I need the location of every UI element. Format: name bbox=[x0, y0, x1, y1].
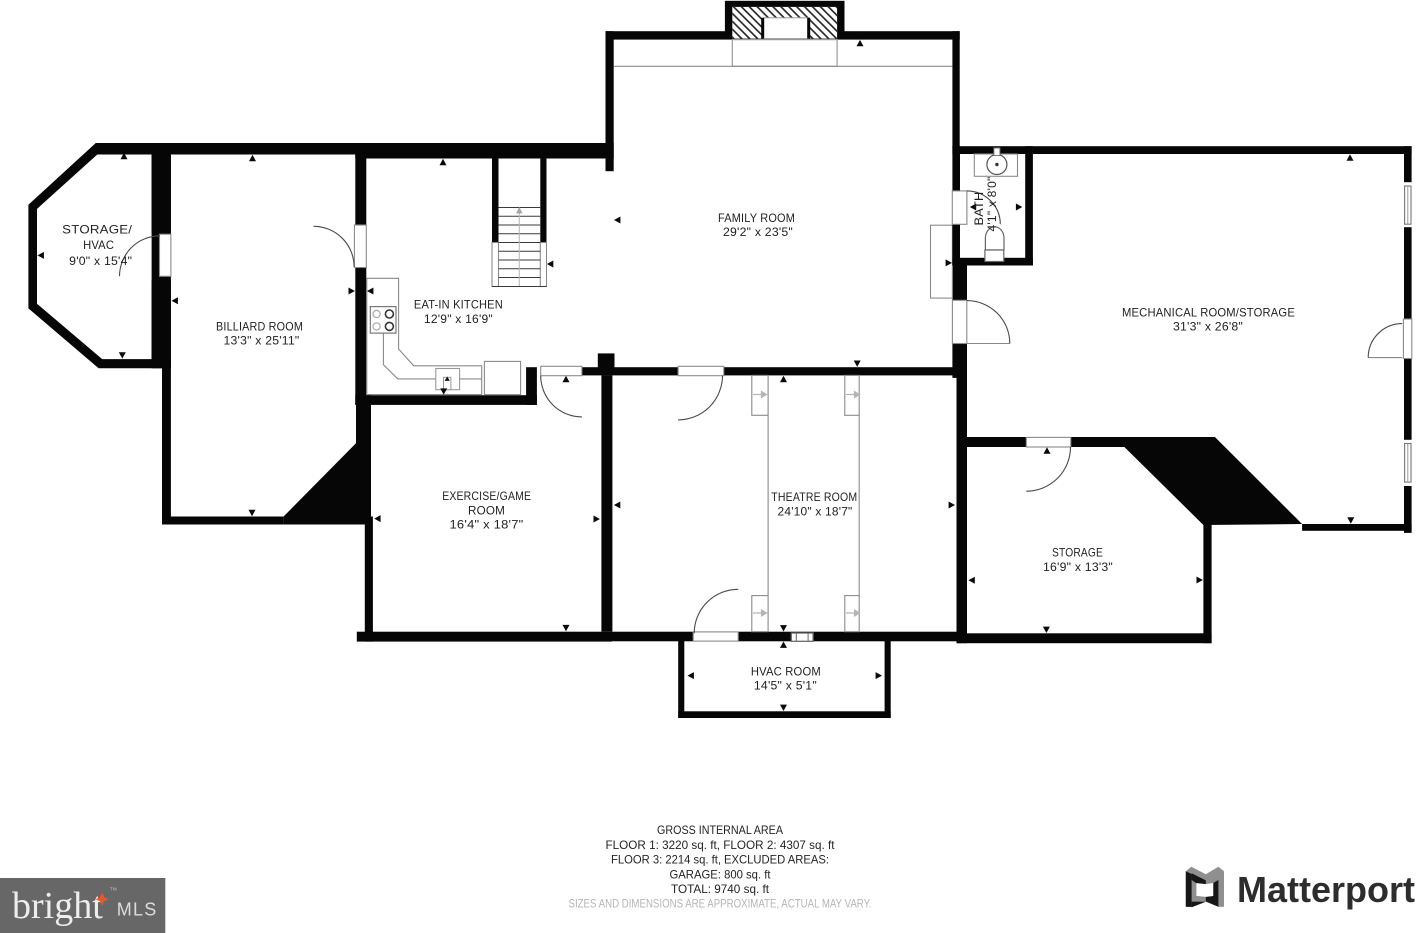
svg-text:bright: bright bbox=[12, 885, 103, 927]
svg-text:EAT-IN KITCHEN: EAT-IN KITCHEN bbox=[414, 298, 503, 312]
svg-text:24'10" x 18'7": 24'10" x 18'7" bbox=[778, 505, 853, 518]
svg-text:STORAGE/: STORAGE/ bbox=[62, 223, 132, 237]
svg-text:9'0" x 15'4": 9'0" x 15'4" bbox=[69, 255, 132, 268]
svg-text:TOTAL: 9740 sq. ft: TOTAL: 9740 sq. ft bbox=[671, 882, 770, 896]
svg-text:13'3" x 25'11": 13'3" x 25'11" bbox=[224, 335, 300, 348]
svg-text:SIZES AND DIMENSIONS ARE APPRO: SIZES AND DIMENSIONS ARE APPROXIMATE, AC… bbox=[569, 897, 872, 911]
svg-text:HVAC: HVAC bbox=[83, 238, 114, 252]
svg-text:16'9" x 13'3": 16'9" x 13'3" bbox=[1043, 561, 1113, 574]
svg-text:31'3" x 26'8": 31'3" x 26'8" bbox=[1173, 321, 1243, 334]
svg-text:FLOOR 3: 2214 sq. ft, EXCLUDED: FLOOR 3: 2214 sq. ft, EXCLUDED AREAS: bbox=[611, 853, 829, 867]
svg-text:16'4" x 18'7": 16'4" x 18'7" bbox=[450, 518, 524, 531]
svg-text:BATH: BATH bbox=[972, 192, 986, 226]
svg-text:HVAC ROOM: HVAC ROOM bbox=[751, 665, 821, 679]
svg-text:ROOM: ROOM bbox=[468, 503, 505, 517]
svg-text:Matterport: Matterport bbox=[1237, 869, 1415, 910]
svg-text:TM: TM bbox=[110, 886, 117, 892]
svg-text:STORAGE: STORAGE bbox=[1052, 546, 1103, 560]
svg-text:4'1" x 8'0": 4'1" x 8'0" bbox=[986, 177, 999, 232]
svg-text:MLS: MLS bbox=[117, 900, 158, 920]
svg-text:GROSS INTERNAL AREA: GROSS INTERNAL AREA bbox=[657, 823, 783, 837]
svg-text:BILLIARD ROOM: BILLIARD ROOM bbox=[216, 320, 303, 334]
svg-text:29'2" x 23'5": 29'2" x 23'5" bbox=[723, 226, 793, 239]
svg-text:FAMILY ROOM: FAMILY ROOM bbox=[718, 211, 795, 225]
svg-text:FLOOR 1: 3220 sq. ft, FLOOR 2:: FLOOR 1: 3220 sq. ft, FLOOR 2: 4307 sq. … bbox=[606, 838, 836, 852]
svg-text:14'5" x 5'1": 14'5" x 5'1" bbox=[754, 680, 817, 693]
svg-text:MECHANICAL ROOM/STORAGE: MECHANICAL ROOM/STORAGE bbox=[1122, 306, 1295, 320]
svg-text:12'9" x 16'9": 12'9" x 16'9" bbox=[424, 313, 493, 326]
svg-text:THEATRE ROOM: THEATRE ROOM bbox=[771, 490, 857, 504]
svg-text:GARAGE: 800 sq. ft: GARAGE: 800 sq. ft bbox=[670, 867, 772, 881]
svg-text:EXERCISE/GAME: EXERCISE/GAME bbox=[442, 489, 531, 503]
